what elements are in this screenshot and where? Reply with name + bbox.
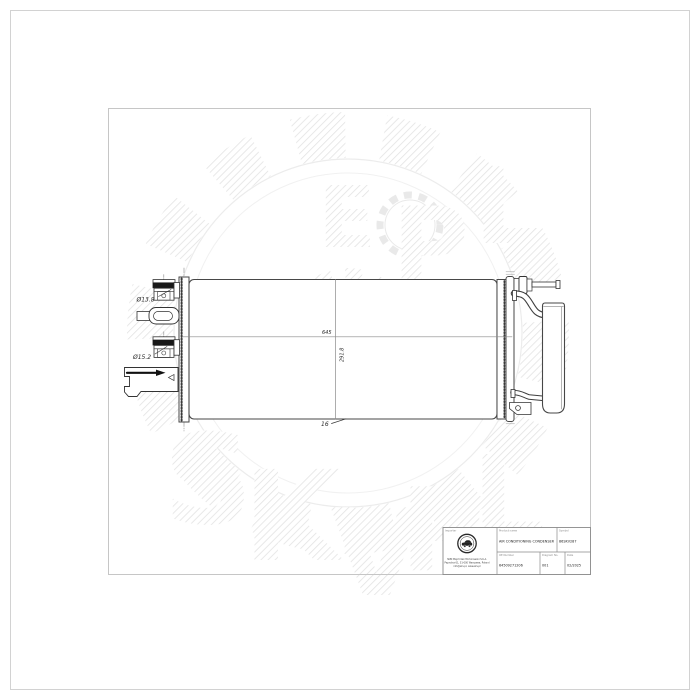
title-block: Importer SKBI Majchrzak Michorowski S.K.…: [443, 528, 591, 575]
page: S K V P L E P L kv: [0, 0, 700, 700]
date-label: Date: [567, 553, 574, 557]
watermark-letter: E: [318, 169, 376, 268]
watermark-letter: L: [474, 146, 541, 268]
watermark-letter: K: [243, 445, 344, 590]
left-fin-strip: [179, 277, 189, 422]
product-name-label: Product name: [499, 529, 517, 533]
svg-text:16: 16: [321, 421, 329, 428]
receiver-drier: [543, 303, 565, 413]
watermark-letter: S: [163, 408, 253, 553]
diagram-no-value: 001: [542, 564, 548, 568]
symbol-label: Symbol: [559, 529, 569, 533]
dimension-height: 291.8: [340, 348, 346, 362]
diagram-no-label: Diagram No.: [542, 553, 558, 557]
company-address-line3: info@skv.pl, www.skv.pl: [453, 565, 481, 568]
condenser-drawing: Ø13.8 Ø15.2 645 291.8 16: [125, 268, 565, 431]
svg-text:Ø13.8: Ø13.8: [136, 297, 155, 304]
drier-bottom-bracket: [510, 390, 546, 415]
product-name-value: AIR CONDITIONING CONDENSER: [499, 540, 555, 544]
company-logo: [458, 534, 476, 552]
company-address-line2: Paprotna 61, 51-000 Warszawa, Poland: [445, 561, 490, 564]
technical-drawing-svg: S K V P L E P L kv: [0, 0, 700, 700]
company-address-line1: SKBI Majchrzak Michorowski S.K.A.: [447, 558, 487, 561]
symbol-value: 86SKV287: [559, 540, 576, 544]
svg-text:Ø15.2: Ø15.2: [132, 354, 151, 361]
dimension-depth: 16: [321, 419, 346, 428]
dimension-width: 645: [322, 330, 332, 336]
importer-label: Importer: [445, 529, 457, 533]
oe-number-label: OE Number: [499, 553, 515, 557]
oe-number-value: 64509271206: [499, 564, 523, 568]
drier-inlet-pipe: [513, 291, 547, 316]
port-top: [153, 275, 180, 301]
date-value: 02/2025: [567, 564, 581, 568]
right-fin-strip: [497, 280, 506, 420]
